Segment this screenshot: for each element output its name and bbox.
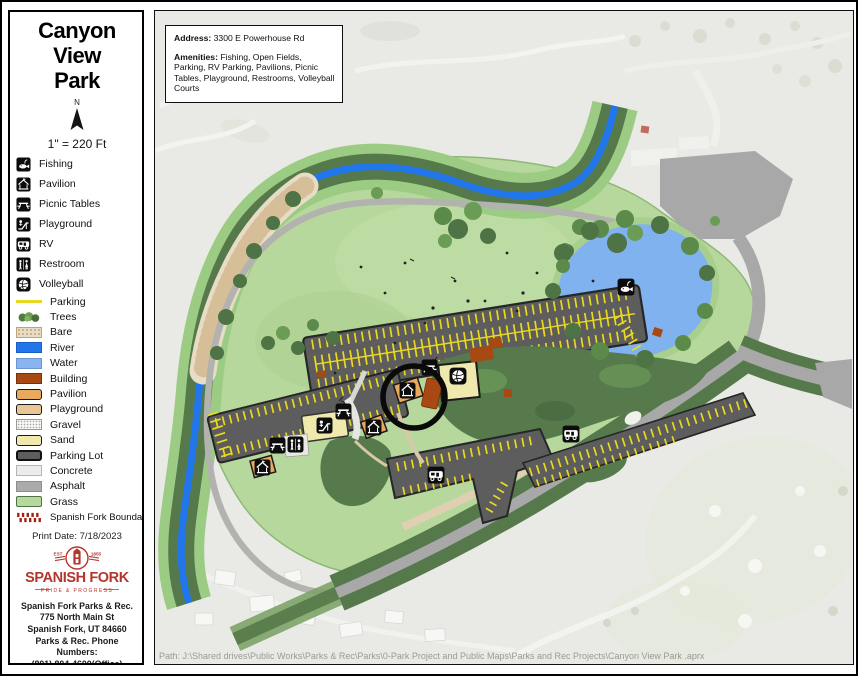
contact-phone-header: Parks & Rec. Phone Numbers: xyxy=(16,636,138,659)
north-arrow-icon xyxy=(67,107,87,131)
playground-icon xyxy=(16,217,31,232)
legend-item-water: Water xyxy=(16,356,138,371)
building-3 xyxy=(489,337,502,349)
legend-item-pavilion: Pavilion xyxy=(16,174,138,194)
spanish-fork-logo: EST 1855 SPANISH FORK PRIDE & PROGRESS xyxy=(16,545,138,597)
legend-item-playground-area: Playground xyxy=(16,402,138,417)
fishing-icon xyxy=(16,157,31,172)
map-playground-icon xyxy=(317,418,333,434)
legend-item-picnic-tables: Picnic Tables xyxy=(16,194,138,214)
info-box: Address: 3300 E Powerhouse Rd Amenities:… xyxy=(165,25,343,103)
info-address-label: Address: xyxy=(174,33,211,43)
map-rv-icon-2 xyxy=(563,426,580,443)
map-rv-icon-1 xyxy=(428,467,445,484)
legend-item-pavilion-area: Pavilion xyxy=(16,386,138,401)
contact-block: Spanish Fork Parks & Rec. 775 North Main… xyxy=(16,601,138,665)
legend-item-parking: Parking xyxy=(16,294,138,309)
legend-item-asphalt: Asphalt xyxy=(16,479,138,494)
legend-item-fishing: Fishing xyxy=(16,154,138,174)
map-restroom-icon xyxy=(288,437,304,453)
building-4 xyxy=(504,389,512,397)
map-panel: Address: 3300 E Powerhouse Rd Amenities:… xyxy=(154,10,854,665)
logo-tagline: PRIDE & PROGRESS xyxy=(41,588,113,594)
legend-swatch-parking-lot xyxy=(16,450,42,461)
rv-icon xyxy=(16,237,31,252)
legend-swatch-river xyxy=(16,342,42,353)
north-arrow: N xyxy=(16,99,138,136)
legend-swatch-pavilion xyxy=(16,389,42,400)
legend-item-gravel: Gravel xyxy=(16,417,138,432)
legend-swatch-trees xyxy=(16,312,42,323)
info-amenities-label: Amenities: xyxy=(174,52,218,62)
page-title: Canyon View Park xyxy=(16,18,138,93)
legend-swatch-water xyxy=(16,358,42,369)
map-picnic-icon-3 xyxy=(270,438,286,454)
map-fishing-icon xyxy=(618,279,635,296)
legend: Fishing Pavilion Picnic Tables Playgroun… xyxy=(16,154,138,525)
legend-item-river: River xyxy=(16,340,138,355)
legend-item-bare: Bare xyxy=(16,325,138,340)
volleyball-icon xyxy=(16,277,31,292)
title-line-2: Park xyxy=(16,68,138,93)
legend-swatch-grass xyxy=(16,496,42,507)
info-address-value: 3300 E Powerhouse Rd xyxy=(214,33,305,43)
map-pavilion-icon-1 xyxy=(400,383,416,399)
legend-swatch-boundary xyxy=(16,512,42,523)
map-volleyball-icon xyxy=(450,368,467,385)
project-path-text: Path: J:\Shared drives\Public Works\Park… xyxy=(159,651,704,661)
legend-swatch-sand xyxy=(16,435,42,446)
info-amenities: Amenities: Fishing, Open Fields, Parking… xyxy=(174,52,335,94)
legend-swatch-playground xyxy=(16,404,42,415)
pavilion-icon xyxy=(16,177,31,192)
legend-item-restroom: Restroom xyxy=(16,254,138,274)
contact-street: 775 North Main St xyxy=(16,612,138,624)
map-pavilion-icon-2 xyxy=(366,420,382,436)
legend-item-rv: RV xyxy=(16,234,138,254)
north-label: N xyxy=(16,99,138,107)
legend-swatch-gravel xyxy=(16,419,42,430)
legend-item-parking-lot: Parking Lot xyxy=(16,448,138,463)
legend-swatch-building xyxy=(16,373,42,384)
legend-item-trees: Trees xyxy=(16,309,138,324)
legend-item-sand: Sand xyxy=(16,433,138,448)
title-line-1: Canyon View xyxy=(16,18,138,68)
contact-org: Spanish Fork Parks & Rec. xyxy=(16,601,138,613)
contact-phone-office: (801) 804-4600(Office) xyxy=(16,659,138,665)
legend-swatch-asphalt xyxy=(16,481,42,492)
legend-swatch-bare xyxy=(16,327,42,338)
legend-item-concrete: Concrete xyxy=(16,463,138,478)
map-pavilion-icon-3 xyxy=(255,460,271,476)
legend-item-playground: Playground xyxy=(16,214,138,234)
sidebar: Canyon View Park N 1" = 220 Ft Fishing P… xyxy=(8,10,144,665)
scale-text: 1" = 220 Ft xyxy=(16,137,138,151)
page: Canyon View Park N 1" = 220 Ft Fishing P… xyxy=(0,0,858,676)
logo-est-left: EST xyxy=(54,551,63,556)
legend-swatch-concrete xyxy=(16,465,42,476)
restroom-icon xyxy=(16,257,31,272)
spanish-fork-logo-graphic: EST 1855 SPANISH FORK PRIDE & PROGRESS xyxy=(21,545,133,597)
info-address: Address: 3300 E Powerhouse Rd xyxy=(174,33,335,44)
legend-swatch-parking xyxy=(16,300,42,303)
legend-item-boundary: Spanish Fork Boundary xyxy=(16,509,138,524)
legend-item-building: Building xyxy=(16,371,138,386)
picnic-tables-icon xyxy=(16,197,31,212)
park-map xyxy=(155,11,852,663)
print-date: Print Date: 7/18/2023 xyxy=(16,531,138,542)
legend-item-volleyball: Volleyball xyxy=(16,274,138,294)
logo-name: SPANISH FORK xyxy=(25,570,130,586)
legend-item-grass: Grass xyxy=(16,494,138,509)
map-picnic-icon-2 xyxy=(336,404,352,420)
contact-city: Spanish Fork, UT 84660 xyxy=(16,624,138,636)
logo-est-right: 1855 xyxy=(91,551,102,556)
